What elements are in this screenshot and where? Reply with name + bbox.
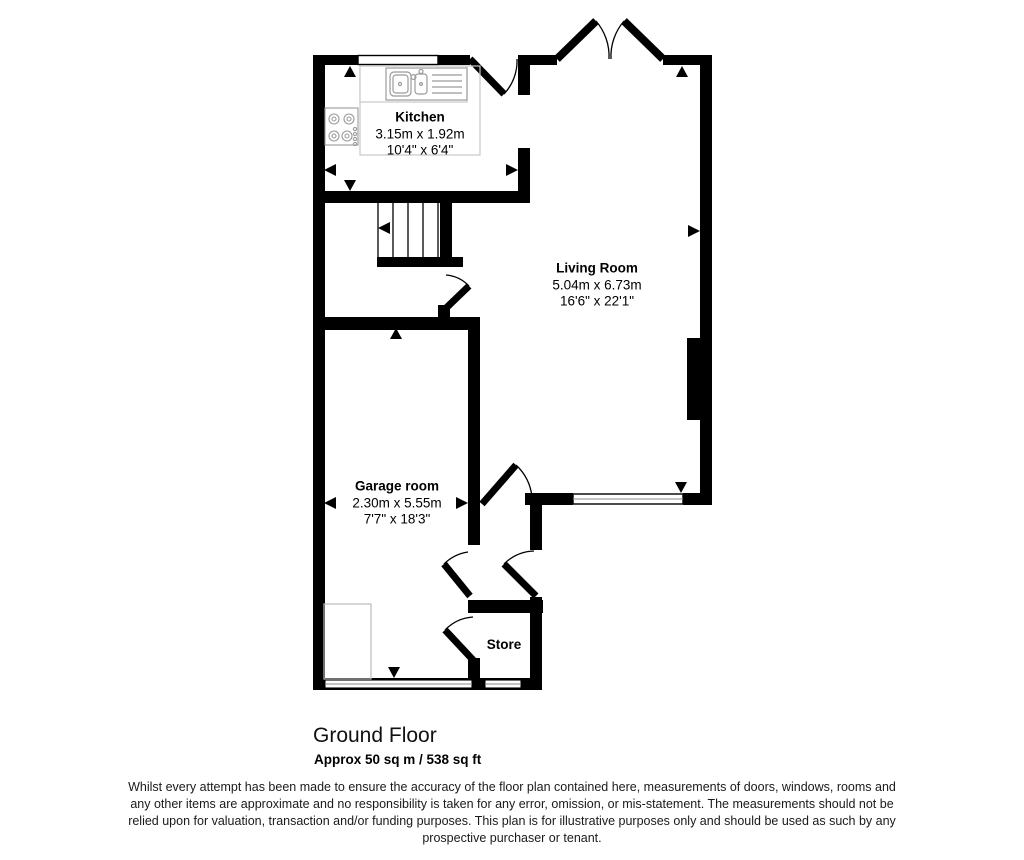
kitchen-name: Kitchen <box>375 109 464 126</box>
kitchen-top-wall-right <box>438 55 470 65</box>
garage-arrow-left-icon <box>324 497 336 509</box>
left-wall <box>313 55 325 690</box>
living-arrow-down-icon <box>675 482 687 493</box>
garage-metric: 2.30m x 5.55m <box>352 495 441 512</box>
living-arrow-left-icon <box>378 222 390 234</box>
living-room-metric: 5.04m x 6.73m <box>552 277 641 294</box>
garage-imperial: 7'7" x 18'3" <box>352 511 441 528</box>
garage-name: Garage room <box>352 478 441 495</box>
floor-title: Ground Floor <box>313 724 437 748</box>
store-window <box>485 680 521 688</box>
store-name: Store <box>487 637 522 654</box>
living-arrow-up-icon <box>676 66 688 77</box>
garage-fixture-box <box>324 604 371 679</box>
kitchen-arrow-down-icon <box>344 180 356 191</box>
living-top-wall-left <box>518 55 557 65</box>
kitchen-top-wall-left <box>313 55 358 65</box>
store-label: Store <box>487 637 522 654</box>
kitchen-label: Kitchen 3.15m x 1.92m 10'4" x 6'4" <box>375 109 464 159</box>
hob-icon <box>325 108 358 146</box>
understair-hall-door <box>443 275 469 311</box>
rear-hall-right-wall <box>530 493 542 550</box>
approx-area-label: Approx 50 sq m / 538 sq ft <box>314 752 481 767</box>
kitchen-arrow-right-icon <box>506 164 518 176</box>
kitchen-metric: 3.15m x 1.92m <box>375 126 464 143</box>
living-room-imperial: 16'6" x 22'1" <box>552 293 641 310</box>
living-bottom-wall-right <box>683 493 712 505</box>
store-top-wall <box>468 600 543 613</box>
floor-plan-page: Kitchen 3.15m x 1.92m 10'4" x 6'4" Livin… <box>0 0 1024 860</box>
garage-top-wall <box>313 317 480 330</box>
kitchen-window <box>358 56 438 65</box>
chimney-breast <box>687 338 702 420</box>
floor-plan-drawing <box>0 0 1024 860</box>
garage-right-wall <box>468 317 480 545</box>
living-room-window <box>573 494 683 504</box>
living-room-name: Living Room <box>552 260 641 277</box>
kitchen-arrow-left-icon <box>324 164 336 176</box>
french-doors <box>557 21 663 59</box>
living-right-wall <box>700 55 712 505</box>
garage-arrow-right-icon <box>456 497 468 509</box>
sink-icon <box>386 68 467 100</box>
understair-wall <box>377 257 463 267</box>
garage-arrow-down-icon <box>388 667 400 678</box>
rear-door <box>504 551 536 596</box>
living-arrow-right-icon <box>688 225 700 237</box>
hall-to-living-door <box>482 465 532 504</box>
stair-side-wall <box>440 202 452 257</box>
kitchen-imperial: 10'4" x 6'4" <box>375 142 464 159</box>
walls <box>313 55 712 690</box>
kitchen-arrow-up-icon <box>344 66 356 77</box>
living-room-label: Living Room 5.04m x 6.73m 16'6" x 22'1" <box>552 260 641 310</box>
kitchen-bottom-wall <box>313 191 530 203</box>
store-door <box>445 617 474 661</box>
hall-to-garage-door <box>444 552 470 596</box>
disclaimer-text: Whilst every attempt has been made to en… <box>126 779 898 847</box>
garage-door-window <box>325 680 472 688</box>
garage-label: Garage room 2.30m x 5.55m 7'7" x 18'3" <box>352 478 441 528</box>
front-door <box>470 59 517 94</box>
